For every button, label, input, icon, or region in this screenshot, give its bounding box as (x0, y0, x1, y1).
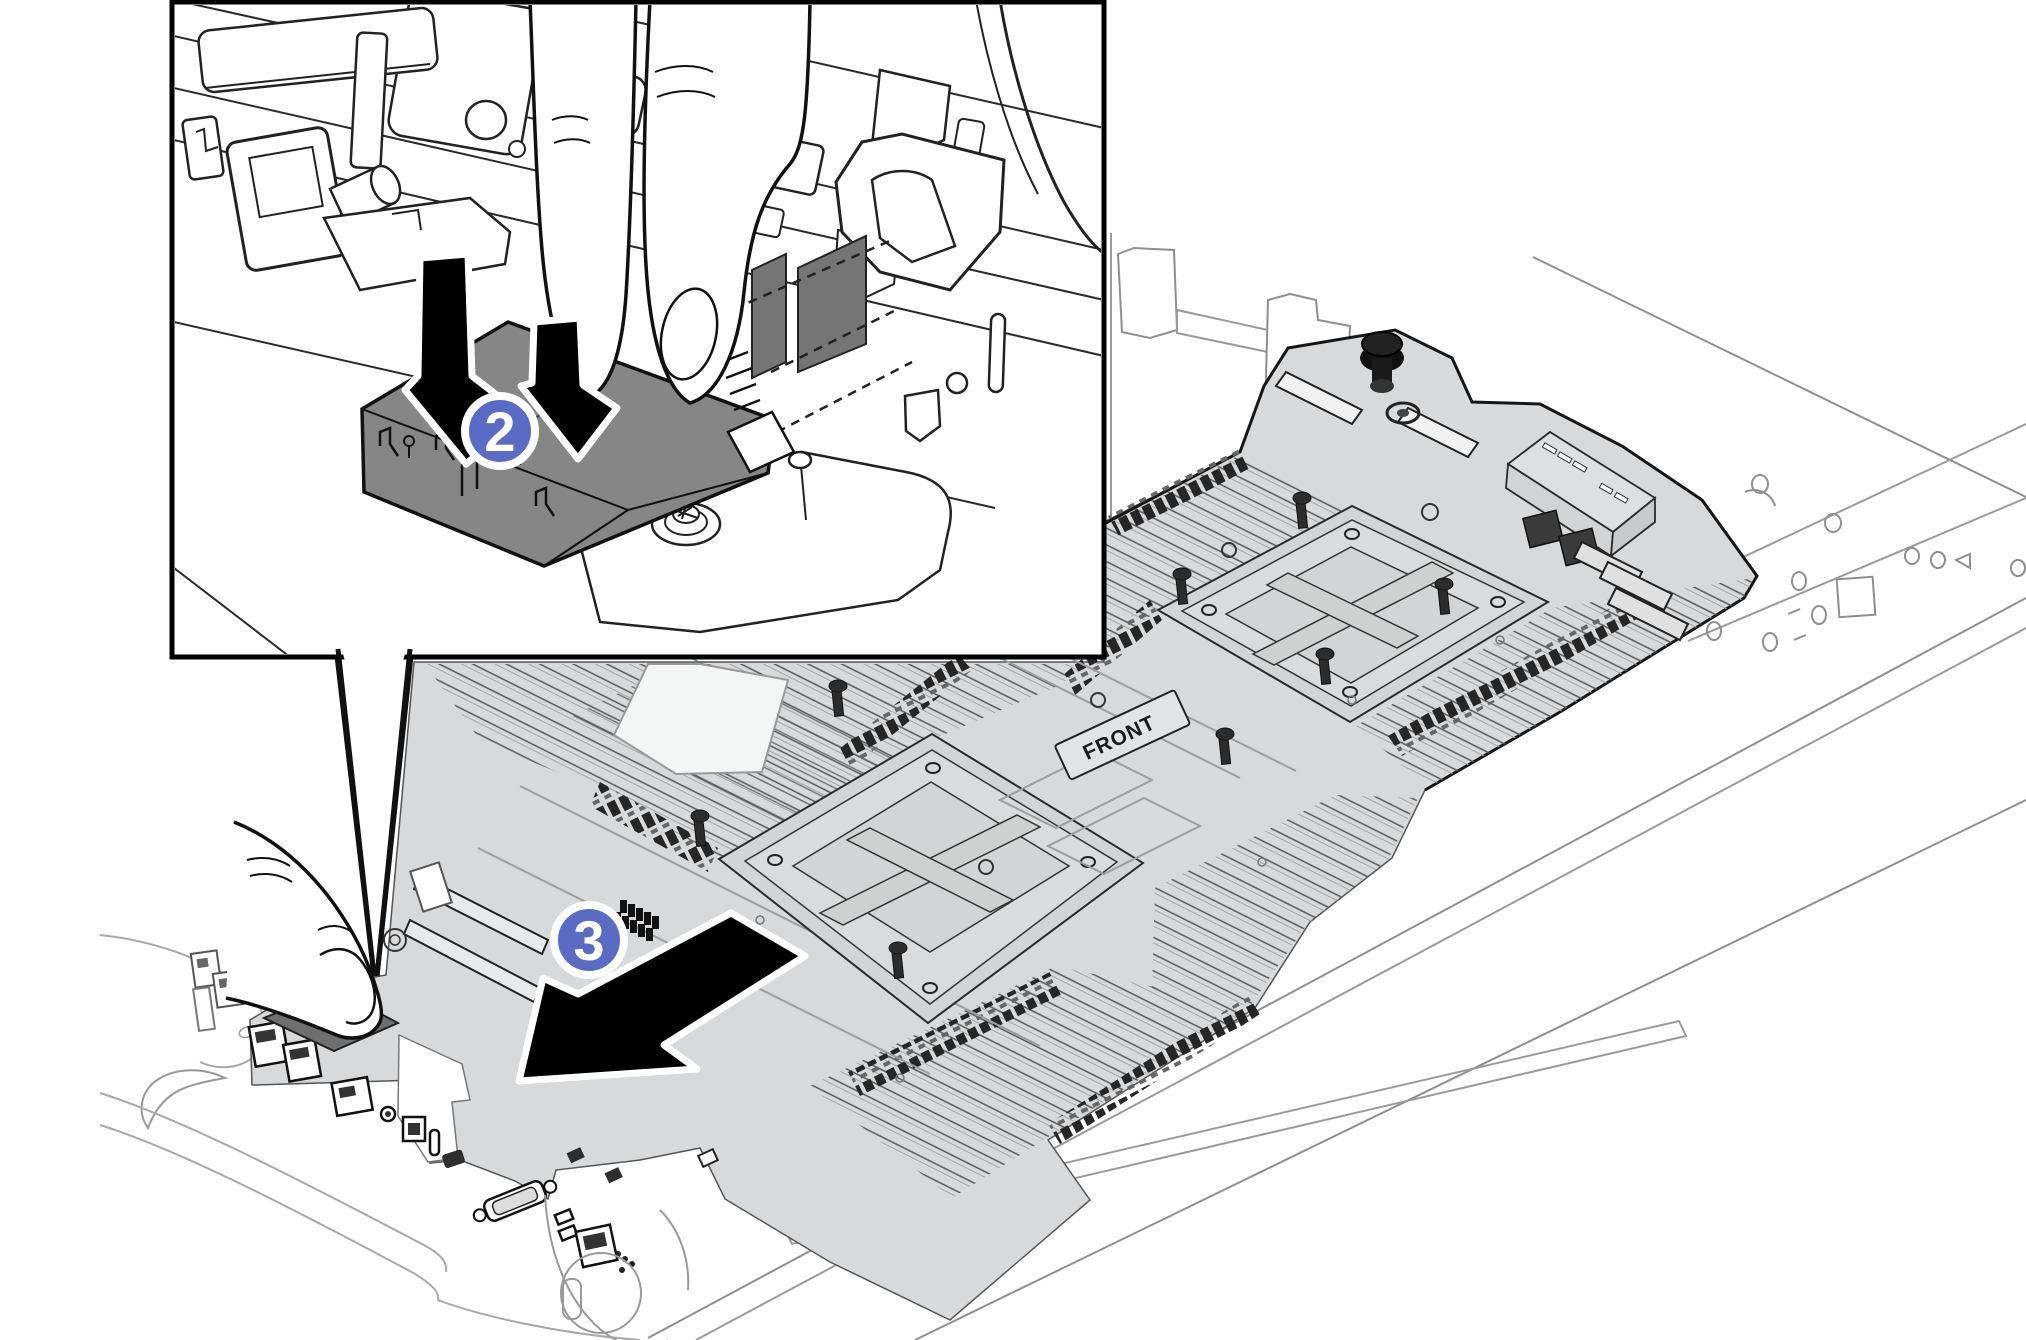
svg-text:2: 2 (484, 400, 515, 463)
svg-text:3: 3 (573, 909, 604, 972)
